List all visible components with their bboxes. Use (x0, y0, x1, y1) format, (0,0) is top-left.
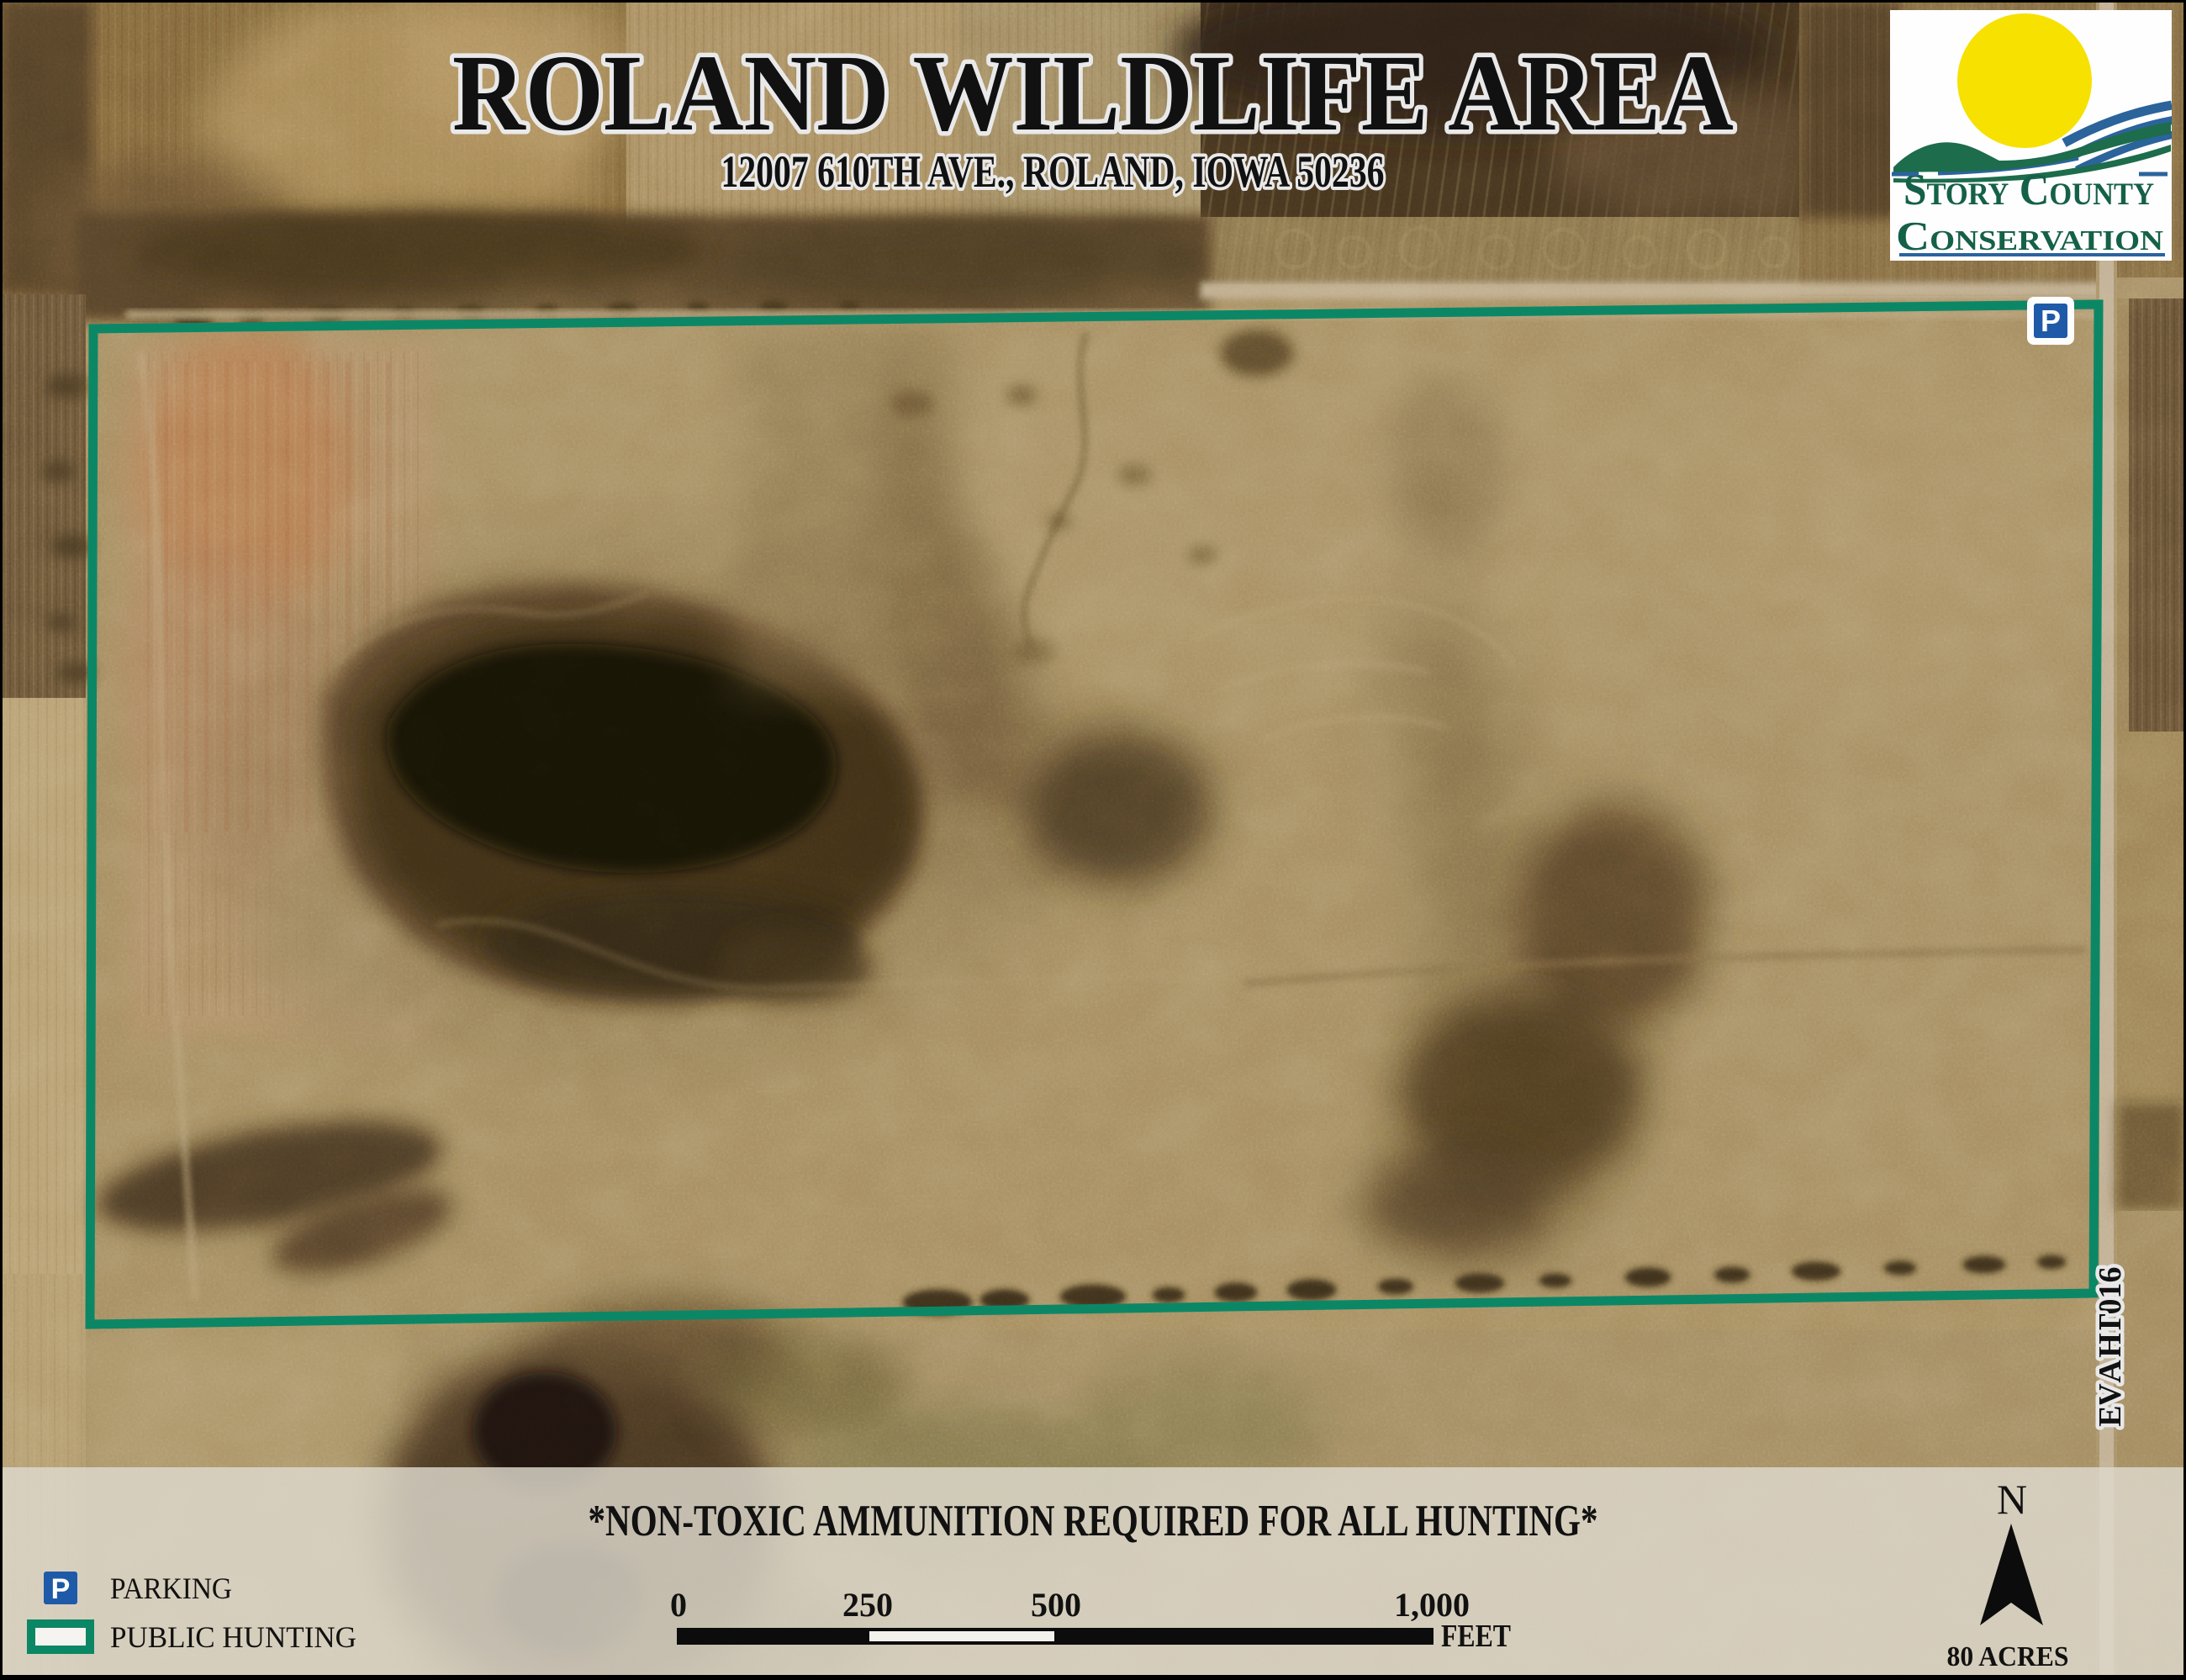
svg-text:12007 610TH AVE., ROLAND, IOWA: 12007 610TH AVE., ROLAND, IOWA 50236 (721, 146, 1385, 197)
svg-text:N: N (1997, 1476, 2027, 1523)
svg-text:E: E (2093, 1405, 2128, 1426)
svg-text:6: 6 (2093, 1267, 2128, 1283)
svg-text:V: V (2093, 1383, 2128, 1407)
svg-text:80 ACRES: 80 ACRES (1947, 1641, 2069, 1672)
svg-text:250: 250 (842, 1586, 893, 1624)
svg-text:H: H (2093, 1333, 2128, 1358)
svg-text:FEET: FEET (1441, 1619, 1511, 1654)
svg-text:1: 1 (2093, 1283, 2128, 1299)
svg-text:PUBLIC HUNTING: PUBLIC HUNTING (110, 1620, 356, 1654)
svg-text:500: 500 (1031, 1586, 1081, 1624)
svg-text:ROLAND WILDLIFE AREA: ROLAND WILDLIFE AREA (452, 33, 1734, 154)
svg-text:Story County: Story County (1904, 166, 2154, 214)
svg-text:P: P (2041, 304, 2061, 338)
svg-text:0: 0 (670, 1586, 687, 1624)
svg-text:PARKING: PARKING (110, 1572, 232, 1605)
svg-text:T: T (2093, 1313, 2128, 1334)
svg-text:Conservation: Conservation (1896, 213, 2163, 259)
svg-text:A: A (2093, 1360, 2128, 1383)
svg-text:P: P (51, 1573, 71, 1605)
svg-text:0: 0 (2093, 1299, 2128, 1315)
svg-text:*NON-TOXIC AMMUNITION REQUIRED: *NON-TOXIC AMMUNITION REQUIRED FOR ALL H… (589, 1497, 1598, 1545)
